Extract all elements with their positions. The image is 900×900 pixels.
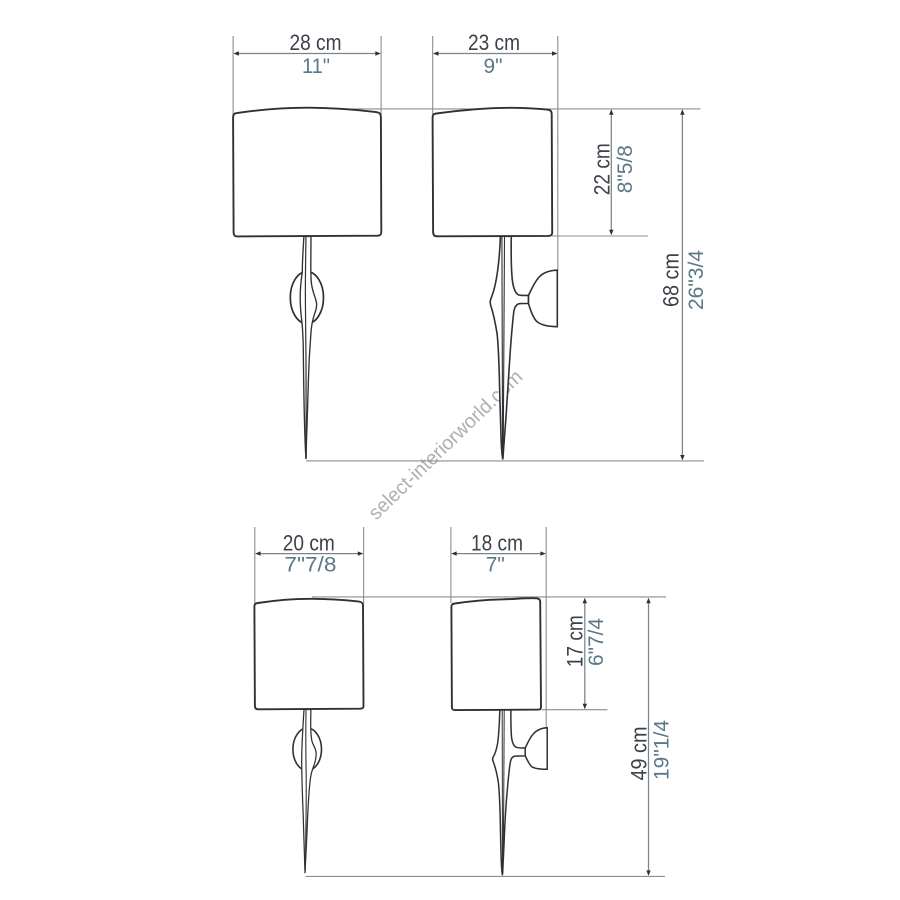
svg-text:23 cm: 23 cm [468, 30, 520, 55]
svg-text:22 cm: 22 cm [589, 143, 614, 195]
svg-text:9": 9" [484, 55, 503, 78]
svg-text:28 cm: 28 cm [290, 30, 342, 55]
svg-text:7": 7" [486, 554, 505, 577]
svg-text:19"1/4: 19"1/4 [651, 720, 674, 780]
svg-text:17 cm: 17 cm [562, 615, 587, 667]
svg-text:49 cm: 49 cm [626, 727, 651, 781]
svg-text:8"5/8: 8"5/8 [614, 145, 637, 193]
svg-text:6"7/4: 6"7/4 [585, 618, 608, 666]
svg-text:18 cm: 18 cm [471, 531, 523, 556]
svg-text:26"3/4: 26"3/4 [685, 250, 708, 310]
svg-text:20 cm: 20 cm [283, 531, 335, 556]
svg-text:11": 11" [302, 55, 330, 78]
svg-text:68 cm: 68 cm [659, 253, 684, 307]
svg-text:7"7/8: 7"7/8 [284, 554, 336, 577]
